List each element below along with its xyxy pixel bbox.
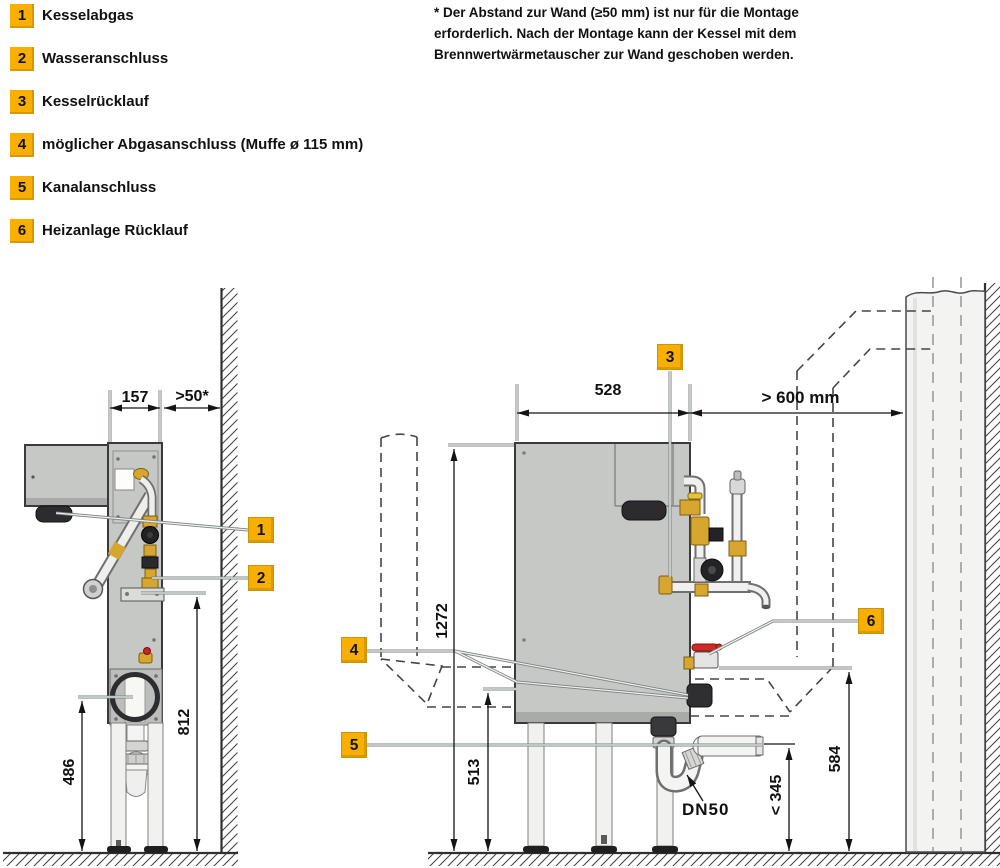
technical-drawing xyxy=(0,0,1000,868)
legend-label-abgasanschluss: möglicher Abgasanschluss (Muffe ø 115 mm… xyxy=(42,133,363,157)
dim-front-width: 528 xyxy=(578,382,638,400)
legend-badge-6: 6 xyxy=(10,219,34,243)
siphon-front-view xyxy=(651,717,763,784)
note-line-1: * Der Abstand zur Wand (≥50 mm) ist nur … xyxy=(434,2,854,23)
heat-exchanger-box xyxy=(25,445,110,522)
left-wall xyxy=(222,288,238,853)
legend-badge-4: 4 xyxy=(10,133,34,157)
callout-2-wasseranschluss: 2 xyxy=(248,565,274,591)
dim-side-width: 157 xyxy=(105,389,165,407)
floor xyxy=(3,853,1000,866)
callout-4-abgasanschluss: 4 xyxy=(341,637,367,663)
legend-label-heizanlage-ruecklauf: Heizanlage Rücklauf xyxy=(42,219,188,243)
dim-front-flue-height: 513 xyxy=(465,742,485,802)
safety-valve xyxy=(691,517,709,545)
dim-drain-pipe-size: DN50 xyxy=(682,800,767,820)
legend-badge-3: 3 xyxy=(10,90,34,114)
mounting-note: * Der Abstand zur Wand (≥50 mm) ist nur … xyxy=(434,2,854,65)
dim-front-total-height: 1272 xyxy=(433,591,453,651)
dim-side-wall-gap: >50* xyxy=(162,388,222,406)
dim-front-return-height: 584 xyxy=(826,729,846,789)
legend-badge-2: 2 xyxy=(10,47,34,71)
boiler-installation-diagram: 1 Kesselabgas 2 Wasseranschluss 3 Kessel… xyxy=(0,0,1000,868)
return-connection-cap xyxy=(659,576,672,594)
dim-side-drain-height: 486 xyxy=(60,742,80,802)
callout-6-heizanlage-ruecklauf: 6 xyxy=(858,608,884,634)
callout-3-kesselruecklauf: 3 xyxy=(657,344,683,370)
legend-badge-1: 1 xyxy=(10,4,34,28)
dim-side-connection-height: 812 xyxy=(175,692,195,752)
legend-badge-5: 5 xyxy=(10,176,34,200)
legend-label-kesselabgas: Kesselabgas xyxy=(42,4,134,28)
legend-label-kanalanschluss: Kanalanschluss xyxy=(42,176,156,200)
callout-1-kesselabgas: 1 xyxy=(248,517,274,543)
rear-flue-connector xyxy=(687,684,712,707)
right-wall xyxy=(985,283,1000,853)
legend-label-kesselruecklauf: Kesselrücklauf xyxy=(42,90,149,114)
dim-front-wall-clearance: > 600 mm xyxy=(723,388,878,408)
dim-front-drain-max-height: < 345 xyxy=(767,765,787,825)
chimney-shaft xyxy=(906,277,985,852)
legend-label-wasseranschluss: Wasseranschluss xyxy=(42,47,168,71)
note-line-3: Brennwertwärmetauscher zur Wand geschobe… xyxy=(434,44,854,65)
callout-5-kanalanschluss: 5 xyxy=(341,732,367,758)
note-line-2: erforderlich. Nach der Montage kann der … xyxy=(434,23,854,44)
